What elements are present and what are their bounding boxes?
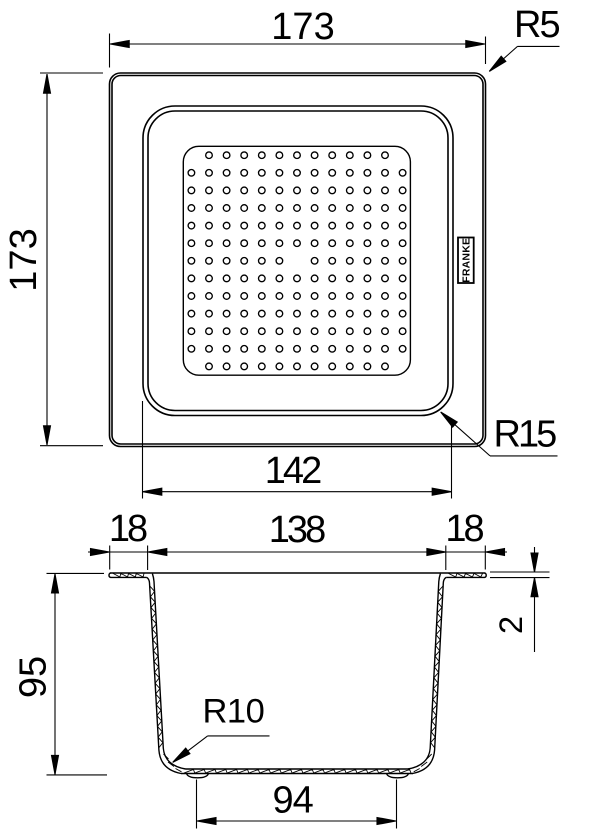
svg-text:2: 2 bbox=[493, 616, 529, 634]
svg-text:FRANKE: FRANKE bbox=[460, 238, 472, 283]
svg-text:142: 142 bbox=[265, 450, 321, 492]
svg-text:R5: R5 bbox=[514, 4, 559, 46]
svg-text:R15: R15 bbox=[494, 414, 557, 456]
svg-text:173: 173 bbox=[3, 228, 45, 291]
svg-text:18: 18 bbox=[445, 508, 483, 550]
svg-text:138: 138 bbox=[269, 509, 325, 551]
svg-text:173: 173 bbox=[271, 6, 334, 48]
svg-text:R10: R10 bbox=[203, 693, 265, 731]
svg-text:94: 94 bbox=[273, 780, 314, 822]
svg-text:95: 95 bbox=[12, 656, 54, 698]
svg-text:18: 18 bbox=[109, 508, 147, 550]
